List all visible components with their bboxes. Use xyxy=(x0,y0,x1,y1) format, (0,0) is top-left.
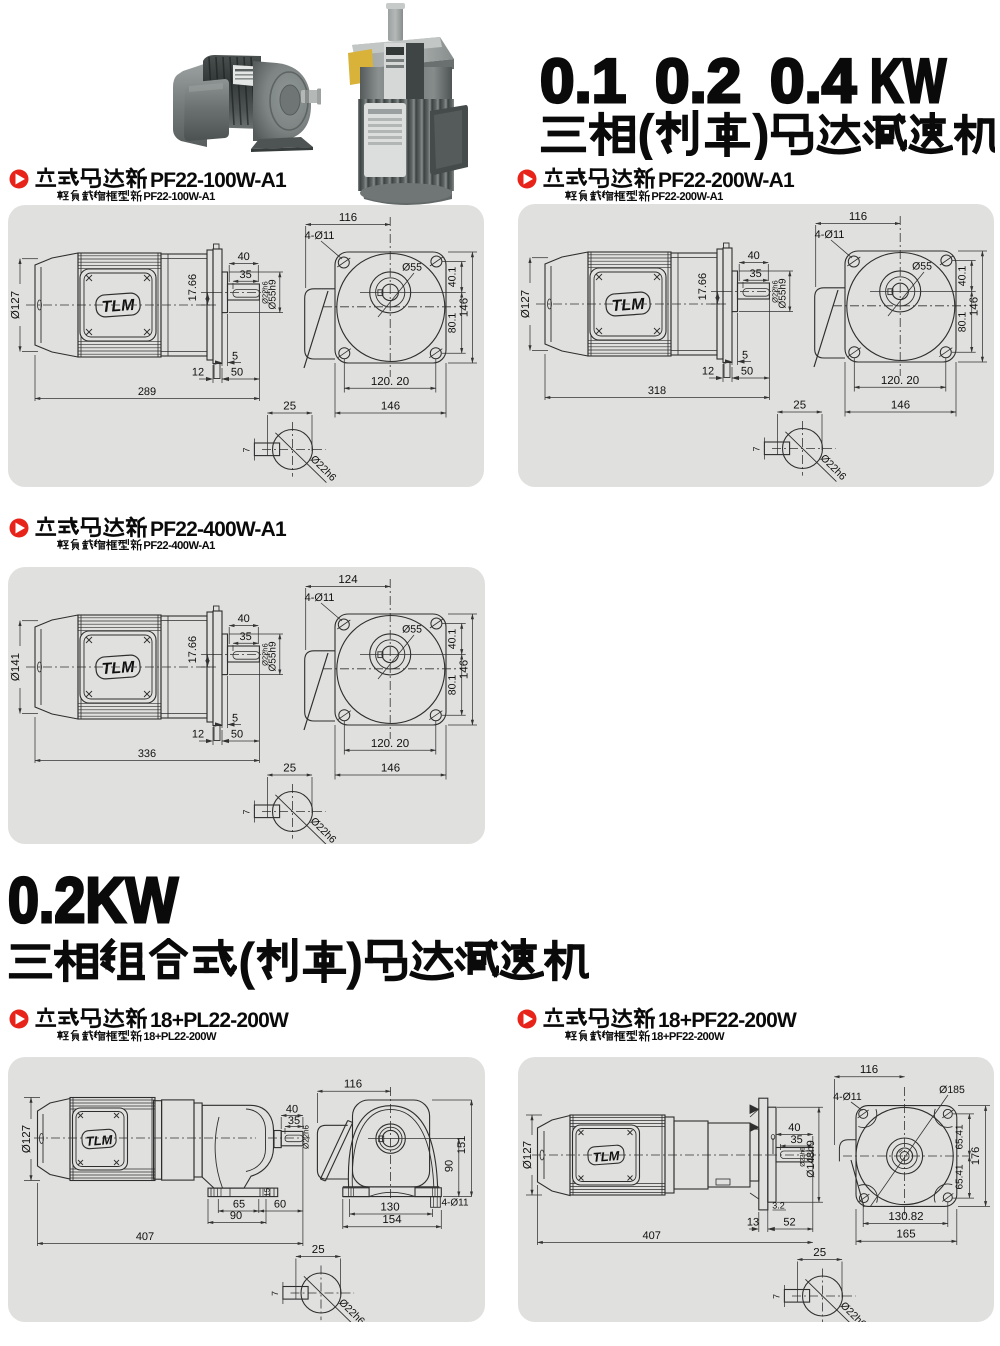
svg-text:Ø185: Ø185 xyxy=(939,1084,965,1096)
svg-text:35: 35 xyxy=(239,269,251,281)
svg-text:17.66: 17.66 xyxy=(187,636,199,664)
svg-text:25: 25 xyxy=(283,401,296,413)
svg-text:52: 52 xyxy=(783,1217,795,1229)
svg-text:0.2KW: 0.2KW xyxy=(8,872,179,936)
svg-text:7: 7 xyxy=(242,809,252,814)
svg-text:Ø55h9: Ø55h9 xyxy=(268,279,279,309)
svg-text:Ø141: Ø141 xyxy=(10,653,22,681)
svg-text:3.2: 3.2 xyxy=(772,1201,785,1211)
svg-text:25: 25 xyxy=(793,400,806,412)
svg-text:50: 50 xyxy=(741,366,753,378)
svg-text:116: 116 xyxy=(339,212,357,224)
svg-text:PF22-400W-A1: PF22-400W-A1 xyxy=(150,518,287,541)
svg-text:25: 25 xyxy=(813,1247,826,1259)
svg-text:116: 116 xyxy=(344,1079,362,1091)
svg-text:40: 40 xyxy=(788,1122,800,1134)
svg-text:5: 5 xyxy=(742,350,748,362)
svg-text:176: 176 xyxy=(970,1147,982,1165)
svg-text:0.1: 0.1 xyxy=(540,48,626,116)
svg-text:146: 146 xyxy=(381,401,400,413)
svg-text:Ø127: Ø127 xyxy=(520,290,532,318)
svg-text:Ø55: Ø55 xyxy=(912,261,932,273)
svg-text:15: 15 xyxy=(263,1188,272,1196)
svg-text:0.2: 0.2 xyxy=(655,48,741,116)
svg-text:4-Ø11: 4-Ø11 xyxy=(441,1197,468,1208)
svg-text:18+PF22-200W: 18+PF22-200W xyxy=(651,1031,725,1043)
svg-text:35: 35 xyxy=(749,268,761,280)
svg-text:18+PL22-200W: 18+PL22-200W xyxy=(150,1009,289,1032)
svg-text:40: 40 xyxy=(238,613,250,625)
svg-text:Ø127: Ø127 xyxy=(21,1125,33,1153)
svg-text:13: 13 xyxy=(747,1217,759,1229)
svg-text:146: 146 xyxy=(459,660,471,679)
svg-text:35: 35 xyxy=(790,1134,802,1146)
svg-text:336: 336 xyxy=(138,748,156,760)
svg-text:65.41: 65.41 xyxy=(955,1164,966,1189)
svg-text:PF22-200W-A1: PF22-200W-A1 xyxy=(651,191,723,203)
svg-text:Ø55h9: Ø55h9 xyxy=(268,641,279,671)
svg-text:12: 12 xyxy=(192,367,204,379)
svg-text:7: 7 xyxy=(772,1294,782,1299)
svg-text:Ø55: Ø55 xyxy=(402,262,422,274)
svg-text:TLM: TLM xyxy=(592,1148,621,1165)
svg-text:80.1: 80.1 xyxy=(447,675,459,696)
svg-text:90: 90 xyxy=(444,1160,456,1172)
svg-text:4-Ø11: 4-Ø11 xyxy=(815,229,845,241)
svg-text:Ø148h9: Ø148h9 xyxy=(805,1140,817,1178)
svg-text:5: 5 xyxy=(232,351,238,363)
svg-text:7: 7 xyxy=(752,446,762,451)
svg-text:40: 40 xyxy=(238,251,250,263)
svg-text:65.41: 65.41 xyxy=(955,1124,966,1149)
svg-text:146: 146 xyxy=(459,298,471,317)
svg-text:120. 20: 120. 20 xyxy=(881,375,919,387)
svg-text:318: 318 xyxy=(648,385,666,397)
svg-text:Ø22h6: Ø22h6 xyxy=(302,1124,311,1149)
svg-text:TLM: TLM xyxy=(611,296,646,315)
svg-text:40.1: 40.1 xyxy=(957,266,969,287)
svg-text:124: 124 xyxy=(338,574,358,586)
svg-text:35: 35 xyxy=(239,631,251,643)
svg-text:0.4: 0.4 xyxy=(770,48,857,116)
svg-text:TLM: TLM xyxy=(101,659,136,678)
svg-text:(: ( xyxy=(238,933,256,990)
svg-text:PF22-200W-A1: PF22-200W-A1 xyxy=(658,169,795,192)
svg-text:PF22-100W-A1: PF22-100W-A1 xyxy=(150,169,287,192)
svg-text:80.1: 80.1 xyxy=(447,313,459,334)
svg-text:): ) xyxy=(752,104,770,160)
svg-text:35: 35 xyxy=(288,1115,300,1127)
svg-text:146: 146 xyxy=(381,763,400,775)
svg-text:PF22-100W-A1: PF22-100W-A1 xyxy=(143,191,215,203)
svg-text:407: 407 xyxy=(136,1231,154,1243)
svg-text:90: 90 xyxy=(230,1210,242,1222)
svg-text:4-Ø11: 4-Ø11 xyxy=(305,230,335,242)
svg-text:PF22-400W-A1: PF22-400W-A1 xyxy=(143,540,215,552)
svg-text:116: 116 xyxy=(849,211,867,223)
svg-text:154: 154 xyxy=(382,1214,402,1226)
svg-text:Ø55: Ø55 xyxy=(402,624,422,636)
svg-text:7: 7 xyxy=(242,447,252,452)
svg-text:120. 20: 120. 20 xyxy=(371,738,409,750)
svg-text:17.66: 17.66 xyxy=(697,273,709,301)
svg-text:40.1: 40.1 xyxy=(447,629,459,650)
svg-text:151: 151 xyxy=(456,1136,468,1154)
svg-text:4-Ø11: 4-Ø11 xyxy=(305,592,335,604)
svg-text:Ø22h6: Ø22h6 xyxy=(336,1297,367,1322)
svg-text:146: 146 xyxy=(891,400,910,412)
svg-text:Ø22h6: Ø22h6 xyxy=(838,1300,869,1322)
svg-text:130: 130 xyxy=(380,1202,399,1214)
svg-text:12: 12 xyxy=(702,366,714,378)
svg-text:289: 289 xyxy=(138,386,156,398)
svg-text:146: 146 xyxy=(969,297,981,316)
svg-text:): ) xyxy=(346,933,363,990)
svg-text:5: 5 xyxy=(232,713,238,725)
svg-text:KW: KW xyxy=(870,48,946,116)
svg-text:40: 40 xyxy=(748,250,760,262)
svg-text:(: ( xyxy=(637,104,655,160)
svg-text:116: 116 xyxy=(860,1064,878,1076)
svg-text:165: 165 xyxy=(896,1229,915,1241)
svg-text:Ø55h9: Ø55h9 xyxy=(778,278,789,308)
svg-text:40: 40 xyxy=(286,1104,298,1116)
svg-text:25: 25 xyxy=(312,1244,325,1256)
svg-text:65: 65 xyxy=(233,1199,245,1211)
svg-text:TLM: TLM xyxy=(101,297,136,316)
svg-text:7: 7 xyxy=(270,1291,280,1296)
svg-text:50: 50 xyxy=(231,367,243,379)
svg-text:17.66: 17.66 xyxy=(187,274,199,302)
svg-text:130.82: 130.82 xyxy=(888,1211,923,1223)
svg-text:Ø22h6: Ø22h6 xyxy=(308,815,339,844)
svg-text:4-Ø11: 4-Ø11 xyxy=(833,1091,862,1103)
svg-text:18+PL22-200W: 18+PL22-200W xyxy=(143,1031,217,1043)
svg-text:80.1: 80.1 xyxy=(957,312,969,333)
svg-text:50: 50 xyxy=(231,729,243,741)
svg-text:12: 12 xyxy=(192,729,204,741)
svg-text:40.1: 40.1 xyxy=(447,267,459,288)
svg-text:60: 60 xyxy=(274,1199,286,1211)
svg-text:Ø127: Ø127 xyxy=(10,291,22,319)
svg-text:25: 25 xyxy=(283,763,296,775)
svg-text:18+PF22-200W: 18+PF22-200W xyxy=(658,1009,797,1032)
svg-text:407: 407 xyxy=(643,1230,661,1242)
svg-text:120. 20: 120. 20 xyxy=(371,376,409,388)
svg-text:TLM: TLM xyxy=(85,1132,114,1149)
